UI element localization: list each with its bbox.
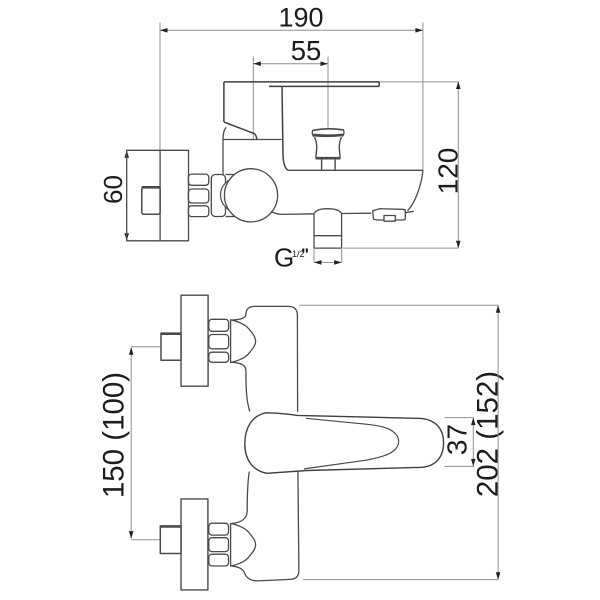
svg-text:190: 190	[278, 3, 323, 33]
svg-text:202 (152): 202 (152)	[472, 371, 505, 497]
svg-text:150 (100): 150 (100)	[98, 372, 131, 498]
svg-text:55: 55	[291, 35, 322, 66]
svg-text:": "	[301, 245, 309, 264]
svg-text:37: 37	[442, 424, 473, 455]
svg-text:60: 60	[98, 175, 128, 204]
